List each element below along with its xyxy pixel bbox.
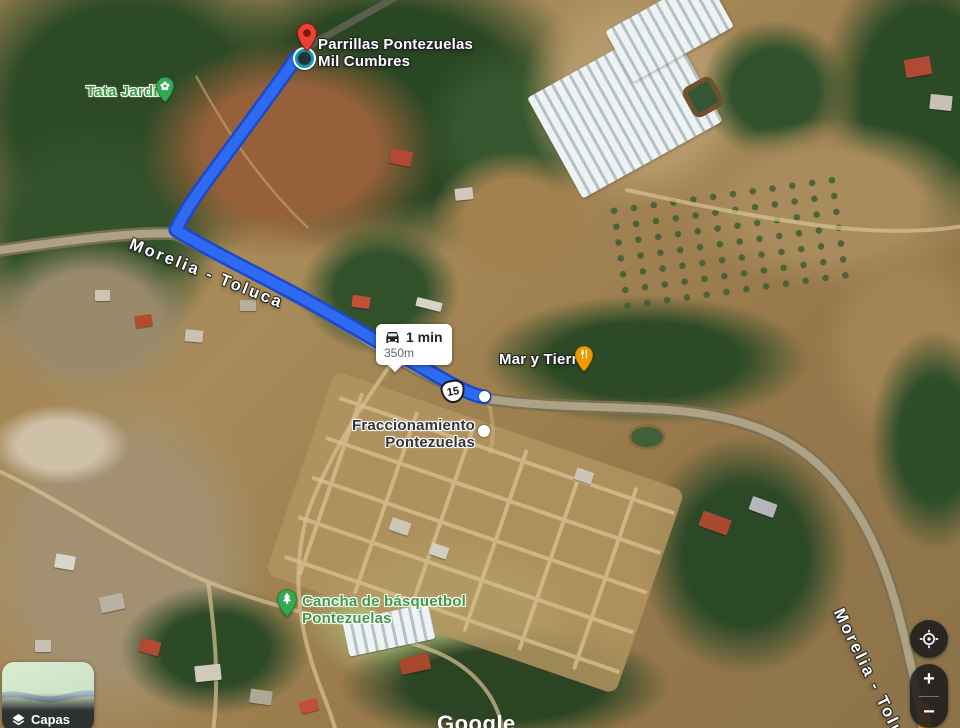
my-location-icon (919, 629, 939, 649)
zoom-out-button[interactable]: − (910, 697, 948, 728)
layers-icon (11, 712, 26, 727)
building (929, 94, 952, 111)
building (138, 638, 161, 657)
building (99, 593, 126, 614)
building (389, 148, 414, 167)
building (388, 517, 411, 536)
tree-pin-icon[interactable] (276, 588, 298, 623)
route-distance: 350m (384, 346, 443, 360)
poi-label-cancha-line2[interactable]: Pontezuelas (302, 610, 392, 627)
poi-label-fraccionamiento-line2[interactable]: Pontezuelas (385, 434, 475, 451)
poi-label-fraccionamiento-line1[interactable]: Fraccionamiento (352, 417, 475, 434)
my-location-button[interactable] (910, 620, 948, 658)
zoom-control: + − (910, 664, 948, 728)
layers-card[interactable]: Capas (2, 662, 94, 728)
building (454, 187, 473, 201)
car-icon (384, 330, 401, 345)
building (351, 295, 370, 309)
building (95, 290, 110, 301)
layers-label-row: Capas (2, 693, 94, 728)
building (415, 297, 442, 312)
building (574, 467, 595, 484)
poi-label-cancha-line1[interactable]: Cancha de básquetbol (302, 593, 466, 610)
building (185, 329, 204, 343)
building (35, 640, 51, 652)
building (399, 653, 432, 675)
building (698, 510, 732, 535)
building (748, 496, 777, 518)
route-endpoint-dot (479, 391, 490, 402)
building (299, 698, 319, 714)
route-duration: 1 min (406, 329, 443, 345)
building (429, 542, 450, 559)
layers-label: Capas (31, 712, 70, 727)
building (194, 664, 222, 683)
highway-number: 15 (446, 385, 460, 399)
building (904, 56, 933, 78)
park-pin-icon[interactable] (155, 76, 175, 108)
google-watermark[interactable]: Google (437, 711, 516, 728)
destination-label-line1[interactable]: Parrillas Pontezuelas (318, 36, 473, 53)
building (54, 553, 76, 570)
zoom-in-button[interactable]: + (910, 664, 948, 696)
destination-pin-icon[interactable] (296, 22, 318, 52)
poi-dot[interactable] (478, 425, 490, 437)
map-canvas[interactable]: Parrillas Pontezuelas Mil Cumbres Tata J… (0, 0, 960, 728)
route-info-bubble[interactable]: 1 min 350m (376, 324, 452, 365)
restaurant-pin-icon[interactable] (574, 345, 594, 377)
building (134, 314, 153, 328)
destination-label-line2[interactable]: Mil Cumbres (318, 53, 410, 70)
buildings-layer (0, 0, 960, 728)
building (249, 689, 273, 706)
